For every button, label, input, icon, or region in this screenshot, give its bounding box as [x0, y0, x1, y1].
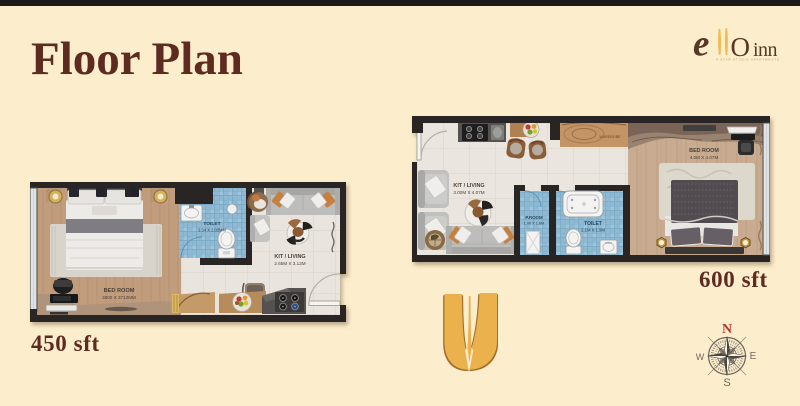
svg-text:S: S: [723, 377, 730, 389]
svg-text:2.1M X 1.9M: 2.1M X 1.9M: [581, 228, 605, 233]
svg-text:4 STAR STUDIO APARTMENTS: 4 STAR STUDIO APARTMENTS: [716, 58, 780, 62]
svg-text:e: e: [693, 24, 709, 65]
svg-text:KIT / LIVING: KIT / LIVING: [453, 183, 484, 189]
svg-text:TOILET: TOILET: [584, 221, 602, 227]
svg-text:1.00 X 1.6M: 1.00 X 1.6M: [524, 222, 544, 226]
svg-text:3.00M X 4.07M: 3.00M X 4.07M: [453, 190, 484, 195]
svg-text:KIT / LIVING: KIT / LIVING: [274, 254, 305, 260]
svg-text:N: N: [722, 322, 732, 337]
svg-text:W: W: [696, 352, 705, 362]
svg-text:TOILET: TOILET: [203, 221, 220, 227]
svg-text:BED ROOM: BED ROOM: [104, 288, 135, 294]
svg-text:BED ROOM: BED ROOM: [689, 148, 719, 154]
svg-text:4.0M X 4.07M: 4.0M X 4.07M: [690, 155, 719, 160]
svg-text:WARDROBE: WARDROBE: [599, 135, 621, 139]
svg-text:3600 X 3712MM: 3600 X 3712MM: [102, 295, 136, 300]
svg-text:1.34 X 2.03MM: 1.34 X 2.03MM: [198, 228, 226, 233]
svg-text:2.65M X 3.12M: 2.65M X 3.12M: [274, 261, 305, 266]
svg-text:E: E: [750, 351, 757, 362]
svg-text:P.ROOM: P.ROOM: [525, 215, 543, 220]
